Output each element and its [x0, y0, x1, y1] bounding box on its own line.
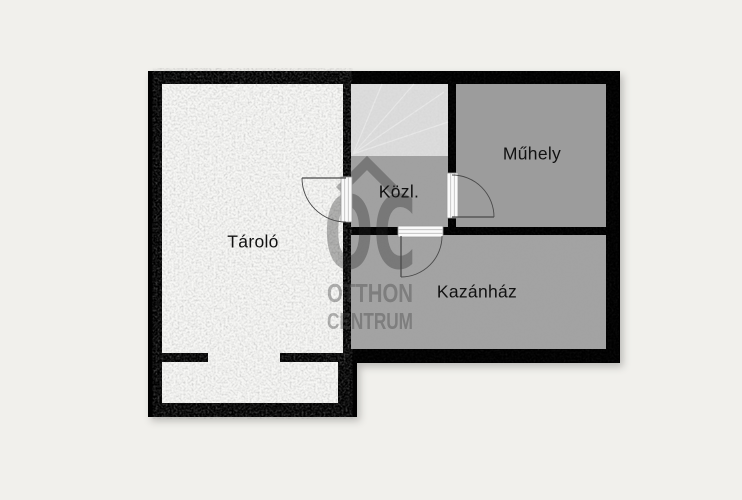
door-muhely-frame: [447, 173, 458, 218]
floorplan-canvas: OC OTTHON CENTRUM Tár: [0, 0, 742, 500]
floorplan-drawing: OC OTTHON CENTRUM: [0, 0, 742, 500]
door-tarolo-frame: [341, 177, 352, 222]
watermark-line2: CENTRUM: [327, 308, 413, 334]
room-label-tarolo: Tároló: [227, 232, 278, 253]
room-label-kazanhaz: Kazánház: [437, 282, 517, 303]
room-label-muhely: Műhely: [503, 144, 561, 165]
stair-area: [351, 84, 448, 156]
room-label-kozl: Közl.: [379, 182, 419, 203]
door-kazanhaz-frame: [398, 226, 443, 237]
watermark-line1: OTTHON: [327, 278, 413, 308]
